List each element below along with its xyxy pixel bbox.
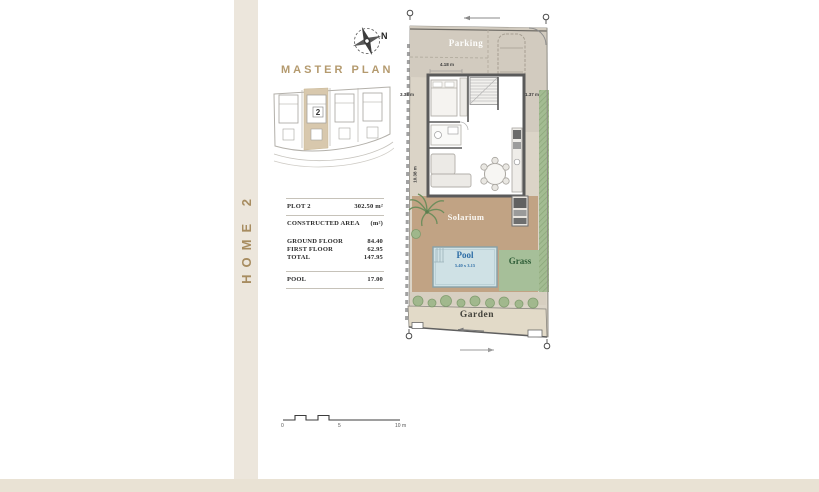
grass-label: Grass bbox=[498, 256, 542, 266]
dimension-left-setback: 3.38 m bbox=[400, 92, 422, 97]
row-value: (m²) bbox=[371, 220, 384, 227]
corner-mark bbox=[528, 330, 542, 337]
table-row-ground-floor: GROUND FLOOR 84.40 bbox=[287, 238, 383, 246]
row-label: PLOT 2 bbox=[287, 203, 311, 210]
scale-label-0: 0 bbox=[281, 423, 284, 429]
scale-bar-graphic bbox=[281, 411, 407, 423]
house bbox=[428, 75, 524, 196]
corner-mark bbox=[412, 323, 423, 329]
floor-plan-drawing bbox=[400, 4, 562, 362]
row-label: GROUND FLOOR bbox=[287, 238, 343, 246]
plot-number: 2 bbox=[316, 108, 321, 117]
compass-icon: N bbox=[346, 16, 392, 64]
parking-label: Parking bbox=[436, 38, 496, 48]
dimension-side-length: 10.38 m bbox=[413, 158, 418, 192]
solarium-label: Solarium bbox=[434, 212, 498, 222]
master-plan-title: MASTER PLAN bbox=[281, 64, 393, 76]
shrub-icon bbox=[412, 230, 421, 239]
dimension-top-width: 4.18 m bbox=[430, 62, 464, 67]
row-value: 62.95 bbox=[367, 246, 383, 254]
bottom-band bbox=[0, 479, 819, 492]
pool-size-label: 5.40 x 3.15 bbox=[438, 263, 492, 268]
direction-arrow-right bbox=[460, 348, 494, 352]
home-title: HOME 2 bbox=[239, 192, 254, 284]
bathroom bbox=[431, 125, 461, 145]
table-row-total: TOTAL 147.95 bbox=[287, 254, 383, 262]
bed bbox=[431, 80, 457, 116]
neighbor-houses bbox=[279, 93, 382, 140]
row-value: 17.00 bbox=[367, 276, 383, 283]
site-plan-map: 2 bbox=[272, 82, 394, 172]
pool-label: Pool bbox=[440, 250, 490, 260]
sidebar: HOME 2 bbox=[234, 168, 258, 308]
outdoor-kitchen bbox=[512, 196, 528, 226]
kitchen-counter bbox=[512, 128, 522, 192]
row-value: 302.50 m² bbox=[354, 203, 383, 210]
wardrobe bbox=[460, 78, 467, 116]
left-fence-hatch bbox=[407, 44, 409, 324]
table-row-first-floor: FIRST FLOOR 62.95 bbox=[287, 246, 383, 254]
info-table: PLOT 2 302.50 m² CONSTRUCTED AREA (m²) G… bbox=[286, 198, 384, 289]
scale-label-5: 5 bbox=[338, 423, 341, 429]
floor-plan: Parking Solarium Pool 5.40 x 3.15 Grass … bbox=[400, 4, 562, 362]
north-label: N bbox=[381, 31, 388, 41]
row-value: 84.40 bbox=[367, 238, 383, 246]
table-row-constructed-area: CONSTRUCTED AREA (m²) bbox=[286, 215, 384, 232]
row-label: FIRST FLOOR bbox=[287, 246, 333, 254]
dimension-right-setback: 1.37 m bbox=[525, 92, 547, 97]
table-row-pool: POOL 17.00 bbox=[286, 271, 384, 288]
row-label: POOL bbox=[287, 276, 306, 283]
scale-bar: 0 5 10 m bbox=[281, 410, 407, 434]
scale-label-10: 10 m bbox=[395, 423, 406, 429]
road-line bbox=[274, 142, 393, 161]
row-label: TOTAL bbox=[287, 254, 310, 262]
stairs bbox=[470, 77, 498, 105]
row-label: CONSTRUCTED AREA bbox=[287, 220, 360, 227]
garden-label: Garden bbox=[446, 310, 508, 320]
direction-arrow-left bbox=[464, 16, 500, 20]
plan-sheet: HOME 2 N MASTER PLAN 2 PLOT 2 bbox=[0, 0, 819, 492]
row-value: 147.95 bbox=[364, 254, 383, 262]
table-row-plot: PLOT 2 302.50 m² bbox=[286, 198, 384, 215]
table-floor-group: GROUND FLOOR 84.40 FIRST FLOOR 62.95 TOT… bbox=[286, 232, 384, 271]
table-bottom-rule bbox=[286, 288, 384, 289]
